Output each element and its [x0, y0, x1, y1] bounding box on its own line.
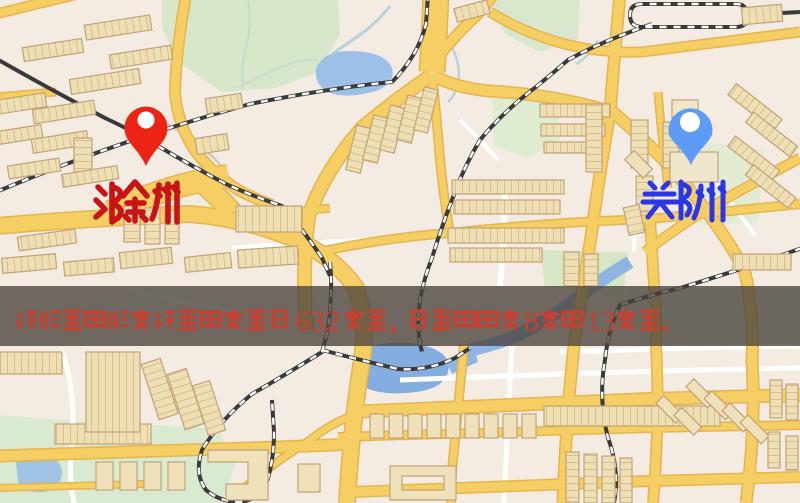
svg-text:13: 13 [586, 305, 616, 338]
svg-text:632: 632 [295, 305, 340, 338]
svg-text:8: 8 [524, 305, 539, 338]
